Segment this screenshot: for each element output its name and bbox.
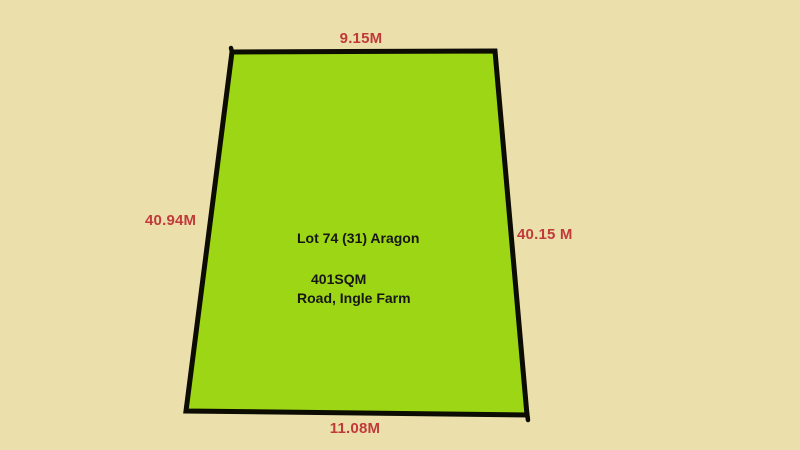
lot-address: Lot 74 (31) Aragon Road, Ingle Farm — [297, 188, 419, 348]
lot-diagram-canvas: 9.15M 40.94M 40.15 M 11.08M Lot 74 (31) … — [0, 0, 800, 450]
dimension-label-left: 40.94M — [145, 212, 193, 229]
lot-address-line2: Road, Ingle Farm — [297, 288, 419, 308]
dimension-label-right: 40.15 M — [517, 226, 573, 243]
lot-address-line1: Lot 74 (31) Aragon — [297, 228, 419, 248]
lot-boundary-overshoot-bottom-right — [527, 413, 528, 420]
dimension-label-top: 9.15M — [340, 30, 383, 47]
lot-boundary-overshoot-top-left — [231, 48, 232, 52]
dimension-label-bottom: 11.08M — [330, 420, 380, 437]
lot-area-label: 401SQM — [311, 271, 366, 287]
